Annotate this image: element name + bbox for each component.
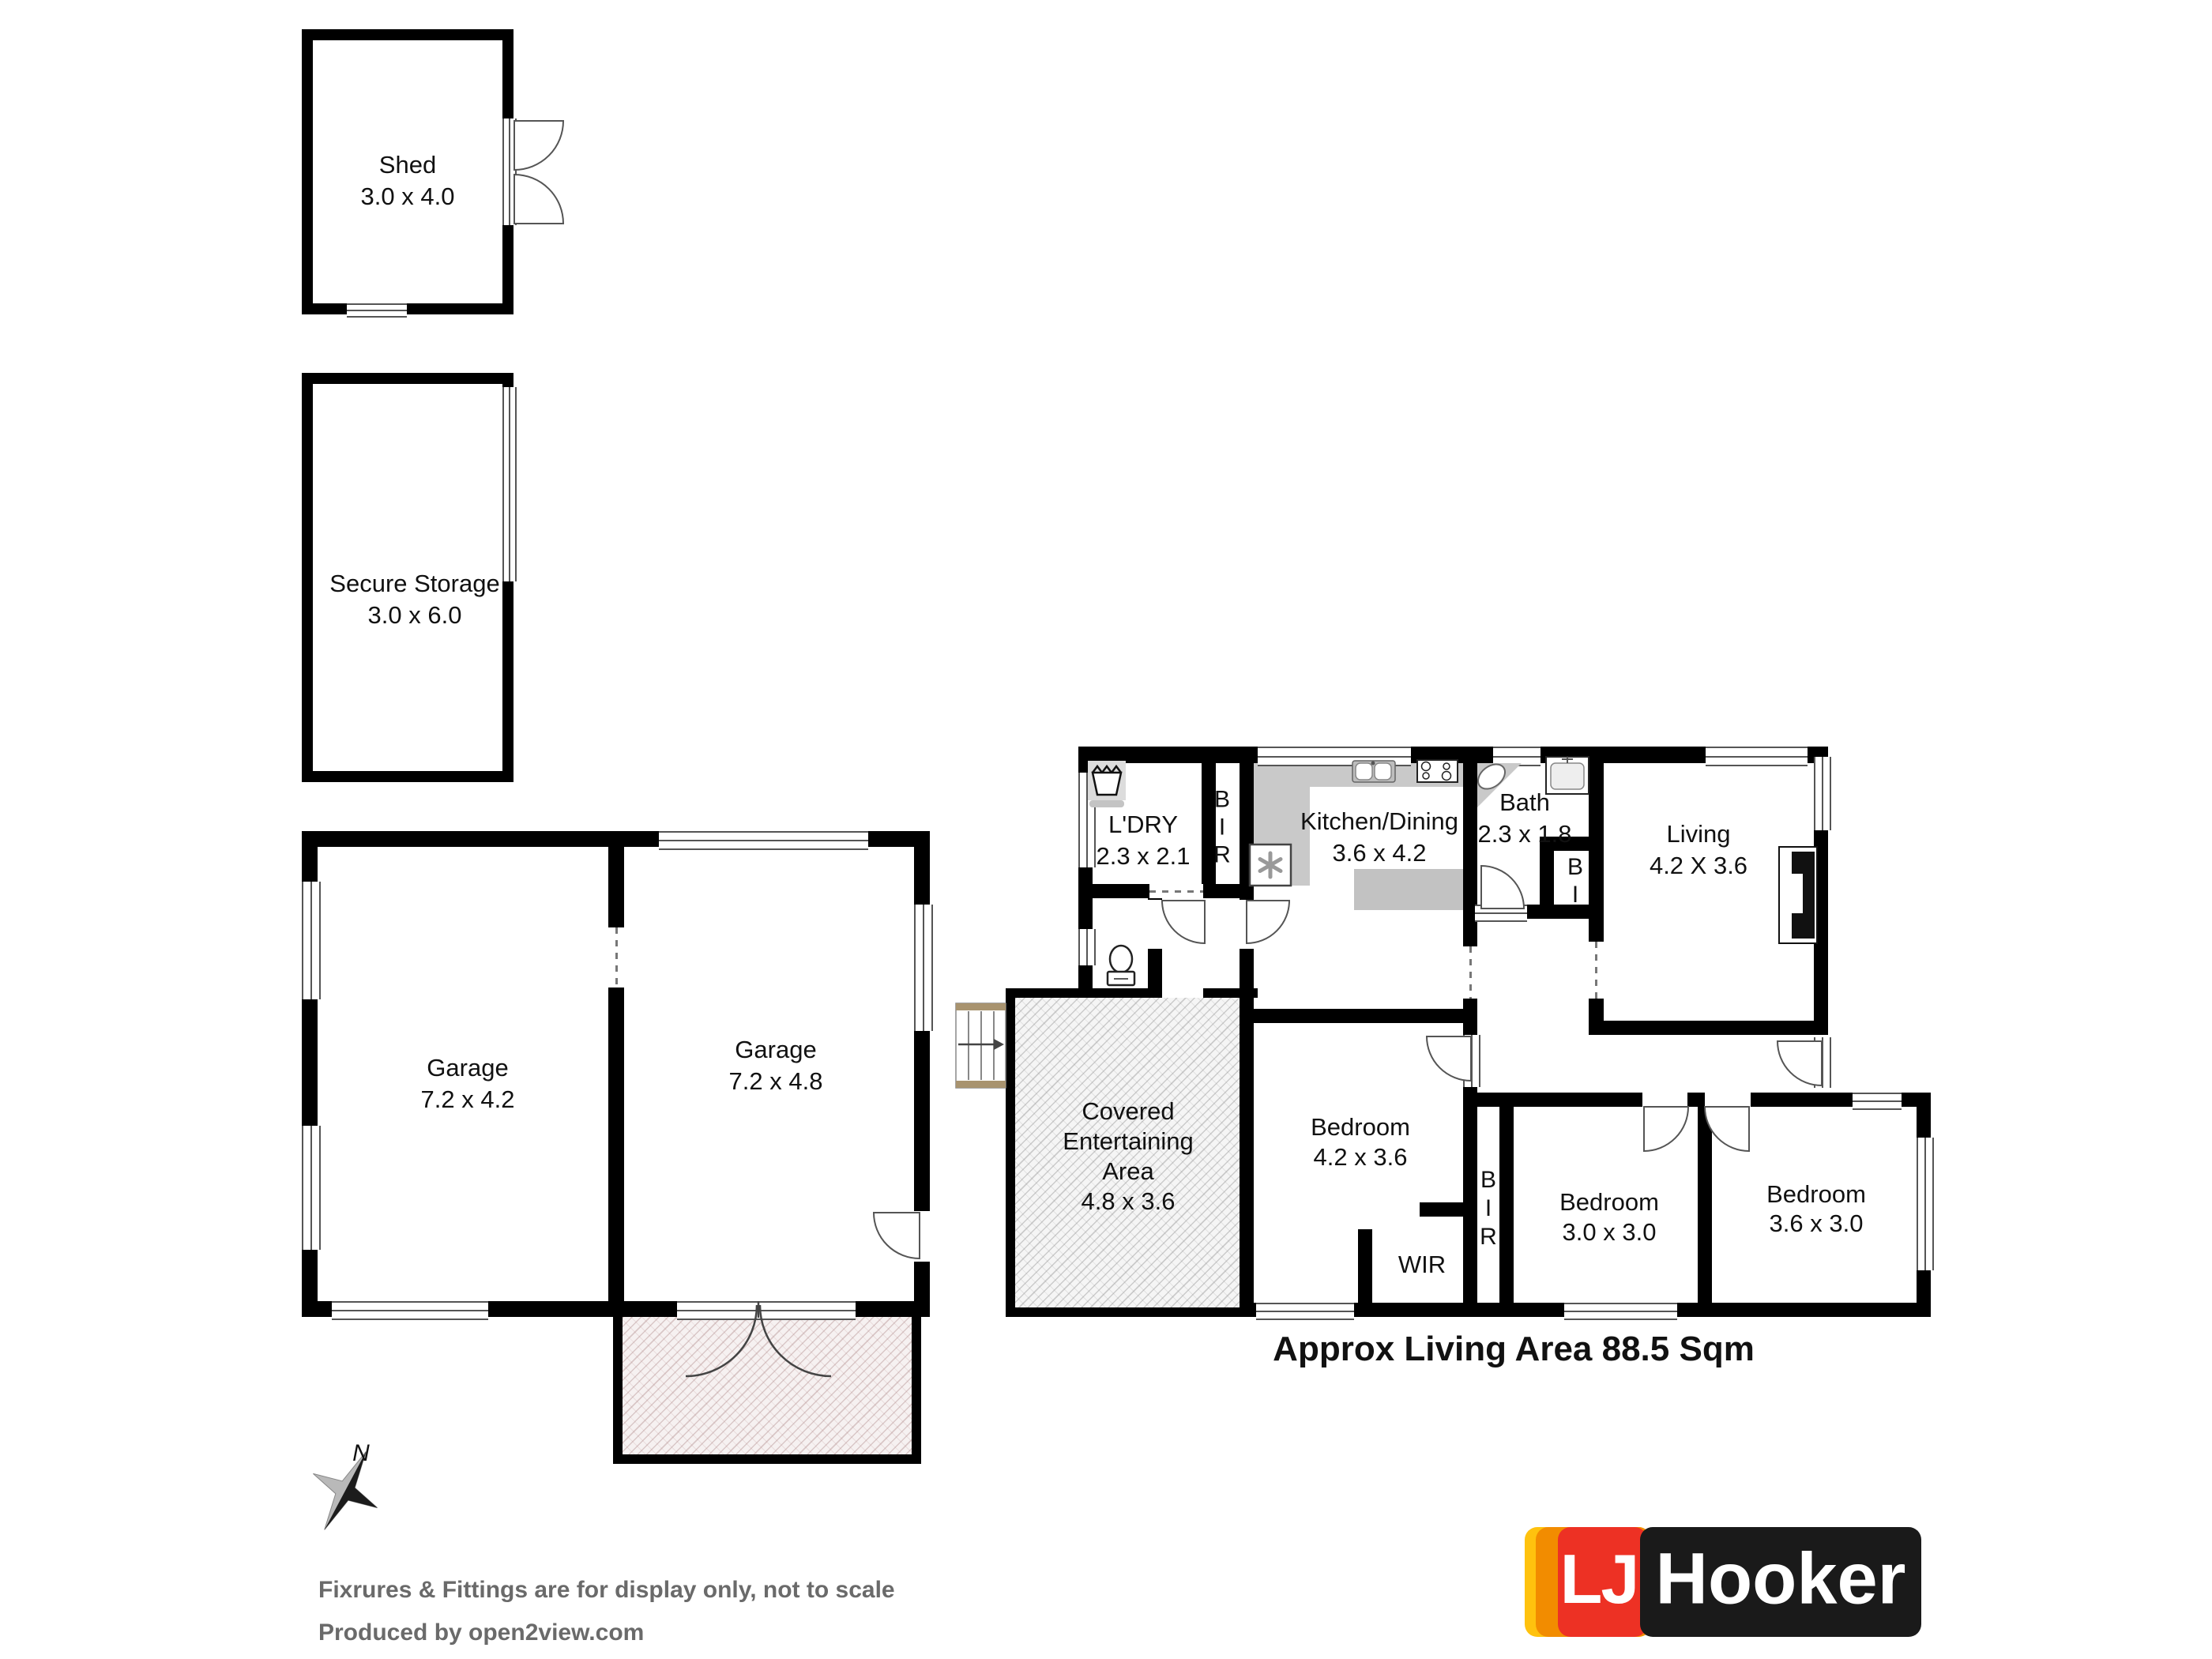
wall xyxy=(608,831,624,1317)
room-dims: 4.8 x 3.6 xyxy=(1063,1187,1193,1217)
wall xyxy=(1499,1107,1514,1303)
floorplan-canvas: Shed 3.0 x 4.0 Secure Storage 3.0 x 6.0 … xyxy=(0,0,2212,1659)
compass-north-label: N xyxy=(352,1440,370,1467)
window xyxy=(332,1301,488,1320)
room-name: Shed xyxy=(361,149,455,181)
window xyxy=(1256,1303,1354,1320)
window xyxy=(502,387,517,581)
window xyxy=(1814,757,1831,830)
room-name: Living xyxy=(1650,818,1747,850)
stairs-icon xyxy=(956,1003,1006,1088)
room-dims: 7.2 x 4.8 xyxy=(729,1066,823,1097)
wall xyxy=(1420,1202,1477,1217)
room-name: Secure Storage xyxy=(329,568,499,600)
room-name: WIR xyxy=(1398,1249,1446,1281)
wall xyxy=(302,303,513,314)
wall xyxy=(1006,1307,1254,1317)
room-name: Garage xyxy=(729,1034,823,1066)
window xyxy=(1853,1093,1902,1110)
wall xyxy=(1463,747,1477,1317)
window xyxy=(1258,747,1411,766)
wall xyxy=(613,1454,921,1464)
wall xyxy=(302,29,313,314)
cased-opening xyxy=(608,927,624,987)
toilet-icon xyxy=(1108,946,1134,985)
door-opening xyxy=(1240,900,1254,949)
window xyxy=(302,882,321,999)
room-label-bedroom-main: Bedroom 4.2 x 3.6 xyxy=(1311,1112,1410,1172)
room-dims: 7.2 x 4.2 xyxy=(421,1084,515,1115)
logo-hooker-wordmark: Hooker xyxy=(1656,1538,1906,1621)
wall xyxy=(1240,1009,1477,1023)
room-label-covered-entertaining: Covered Entertaining Area 4.8 x 3.6 xyxy=(1063,1097,1193,1217)
room-label-bedroom-mid: Bedroom 3.0 x 3.0 xyxy=(1559,1187,1659,1247)
window xyxy=(677,1301,856,1320)
closet-label-bir-bedrooms: B I R xyxy=(1480,1166,1497,1251)
door-opening xyxy=(1162,988,1203,998)
wall xyxy=(302,29,513,40)
room-dims: 4.2 x 3.6 xyxy=(1311,1142,1410,1172)
kitchen-island xyxy=(1354,869,1463,910)
window xyxy=(914,905,933,1031)
wall xyxy=(302,373,313,782)
room-dims: 2.3 x 1.8 xyxy=(1478,818,1572,850)
room-dims: 3.6 x 3.0 xyxy=(1766,1209,1866,1238)
room-dims: 3.0 x 3.0 xyxy=(1559,1217,1659,1247)
room-dims: 3.0 x 4.0 xyxy=(361,181,455,213)
window xyxy=(1917,1138,1934,1270)
window xyxy=(1078,773,1096,867)
room-label-garage-left: Garage 7.2 x 4.2 xyxy=(421,1052,515,1115)
window xyxy=(347,303,407,318)
room-name: Bedroom xyxy=(1766,1179,1866,1209)
window xyxy=(1078,929,1096,965)
cased-opening xyxy=(1149,884,1203,898)
closet-label-bir-laundry: B I R xyxy=(1213,786,1231,869)
room-name: Kitchen/Dining xyxy=(1300,806,1458,837)
room-name: Bath xyxy=(1478,787,1572,818)
driveway-hatch xyxy=(623,1317,912,1454)
window xyxy=(1564,1303,1677,1320)
footer-disclaimer: Fixrures & Fittings are for display only… xyxy=(318,1577,895,1604)
room-dims: 3.0 x 6.0 xyxy=(329,600,499,631)
wall xyxy=(613,1317,623,1464)
room-name: L'DRY xyxy=(1097,809,1191,841)
wall xyxy=(1240,747,1254,1303)
door-opening xyxy=(1148,900,1162,949)
room-name: Bedroom xyxy=(1559,1187,1659,1217)
window xyxy=(1706,747,1808,766)
closet-label-bi-bath: B I xyxy=(1567,853,1583,908)
window xyxy=(1493,747,1540,766)
logo-lj-monogram: LJ xyxy=(1560,1539,1638,1619)
wall xyxy=(1006,988,1015,1317)
room-label-laundry: L'DRY 2.3 x 2.1 xyxy=(1097,809,1191,872)
living-area-headline: Approx Living Area 88.5 Sqm xyxy=(1273,1330,1755,1369)
wall xyxy=(302,771,513,782)
window xyxy=(659,831,868,850)
room-name: Bedroom xyxy=(1311,1112,1410,1142)
room-label-kitchen-dining: Kitchen/Dining 3.6 x 4.2 xyxy=(1300,806,1458,869)
footer-producer: Produced by open2view.com xyxy=(318,1619,644,1646)
wall xyxy=(1006,988,1258,998)
wall xyxy=(302,373,513,384)
door-opening xyxy=(1642,1093,1687,1107)
wall xyxy=(1698,1107,1712,1303)
lj-hooker-logo: LJ Hooker xyxy=(1525,1527,1921,1637)
room-label-bedroom-right: Bedroom 3.6 x 3.0 xyxy=(1766,1179,1866,1238)
wall xyxy=(1589,1021,1828,1035)
door-opening xyxy=(1705,1093,1751,1107)
wall xyxy=(1358,1229,1372,1312)
window xyxy=(1814,1037,1831,1088)
room-label-shed: Shed 3.0 x 4.0 xyxy=(361,149,455,213)
room-label-garage-right: Garage 7.2 x 4.8 xyxy=(729,1034,823,1097)
cased-opening xyxy=(1463,946,1477,999)
cased-opening xyxy=(1589,942,1604,999)
wall xyxy=(912,1317,921,1464)
window xyxy=(1475,905,1527,922)
window xyxy=(1463,1035,1480,1087)
door-opening xyxy=(914,1211,930,1262)
window xyxy=(502,118,517,225)
compass-icon xyxy=(292,1435,398,1547)
room-label-wir: WIR xyxy=(1398,1249,1446,1281)
window xyxy=(302,1126,321,1250)
room-label-bath: Bath 2.3 x 1.8 xyxy=(1478,787,1572,850)
room-name: Garage xyxy=(421,1052,515,1084)
room-dims: 4.2 X 3.6 xyxy=(1650,850,1747,882)
room-dims: 2.3 x 2.1 xyxy=(1097,841,1191,872)
room-dims: 3.6 x 4.2 xyxy=(1300,837,1458,869)
room-label-secure-storage: Secure Storage 3.0 x 6.0 xyxy=(329,568,499,631)
tv-unit-icon xyxy=(1779,847,1817,943)
room-label-living: Living 4.2 X 3.6 xyxy=(1650,818,1747,882)
